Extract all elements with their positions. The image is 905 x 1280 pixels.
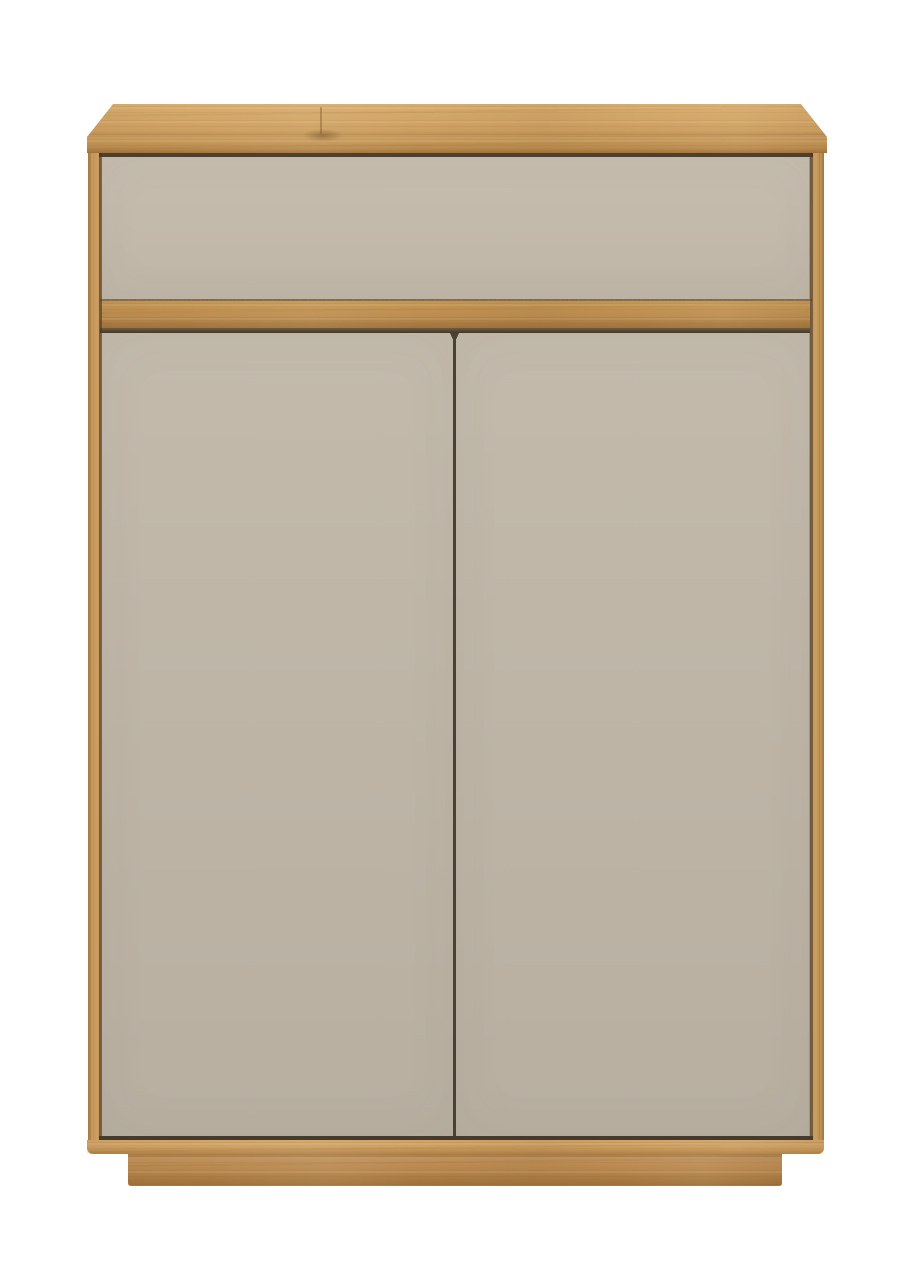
- product-photo-background: [0, 0, 905, 1280]
- right-stile-seam: [810, 153, 813, 1140]
- middle-rail: [100, 301, 810, 328]
- cabinet-carcass: [88, 153, 824, 1140]
- cabinet: [0, 0, 905, 1280]
- wood-knot: [303, 129, 343, 142]
- cabinet-top-surface: [87, 104, 827, 137]
- drawer-front: [101, 157, 809, 299]
- door-gap-seam: [453, 333, 456, 1136]
- bottom-rail: [87, 1140, 824, 1154]
- plinth-base: [128, 1154, 782, 1186]
- right-door: [456, 333, 809, 1136]
- left-stile-seam: [99, 153, 102, 1140]
- left-door: [101, 333, 453, 1136]
- cabinet-top-front-edge: [87, 137, 827, 153]
